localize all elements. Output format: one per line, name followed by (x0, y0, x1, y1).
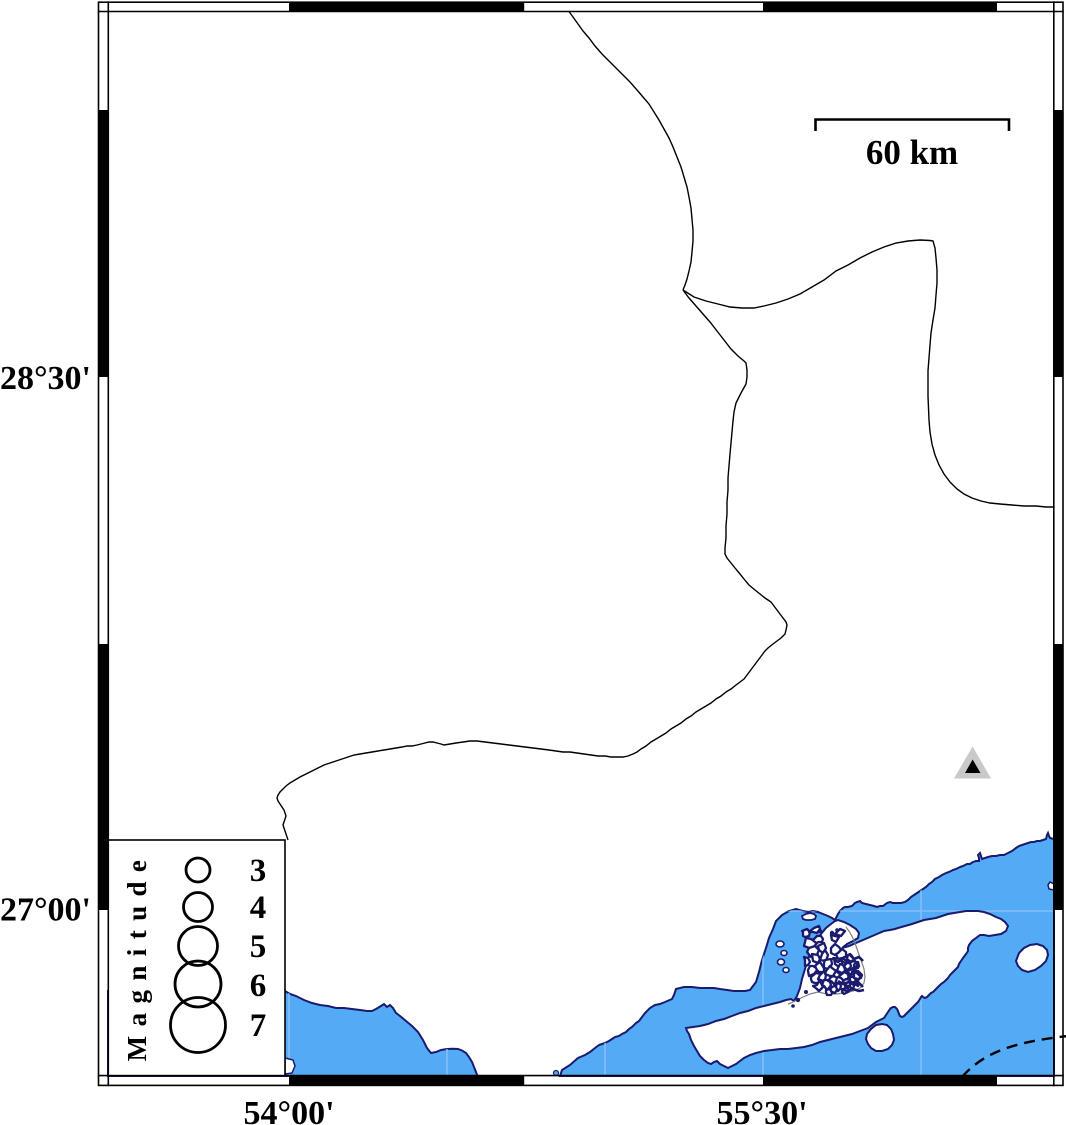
svg-text:60 km: 60 km (866, 133, 958, 172)
svg-text:55°30': 55°30' (716, 1095, 807, 1125)
svg-text:3: 3 (250, 853, 267, 889)
svg-text:6: 6 (250, 968, 267, 1004)
svg-text:Magnitude: Magnitude (122, 851, 152, 1062)
svg-text:27°00': 27°00' (0, 892, 91, 929)
svg-text:5: 5 (250, 929, 267, 965)
svg-text:7: 7 (250, 1008, 267, 1044)
svg-text:54°00': 54°00' (243, 1095, 334, 1125)
svg-text:4: 4 (250, 890, 267, 926)
svg-text:28°30': 28°30' (0, 360, 91, 397)
